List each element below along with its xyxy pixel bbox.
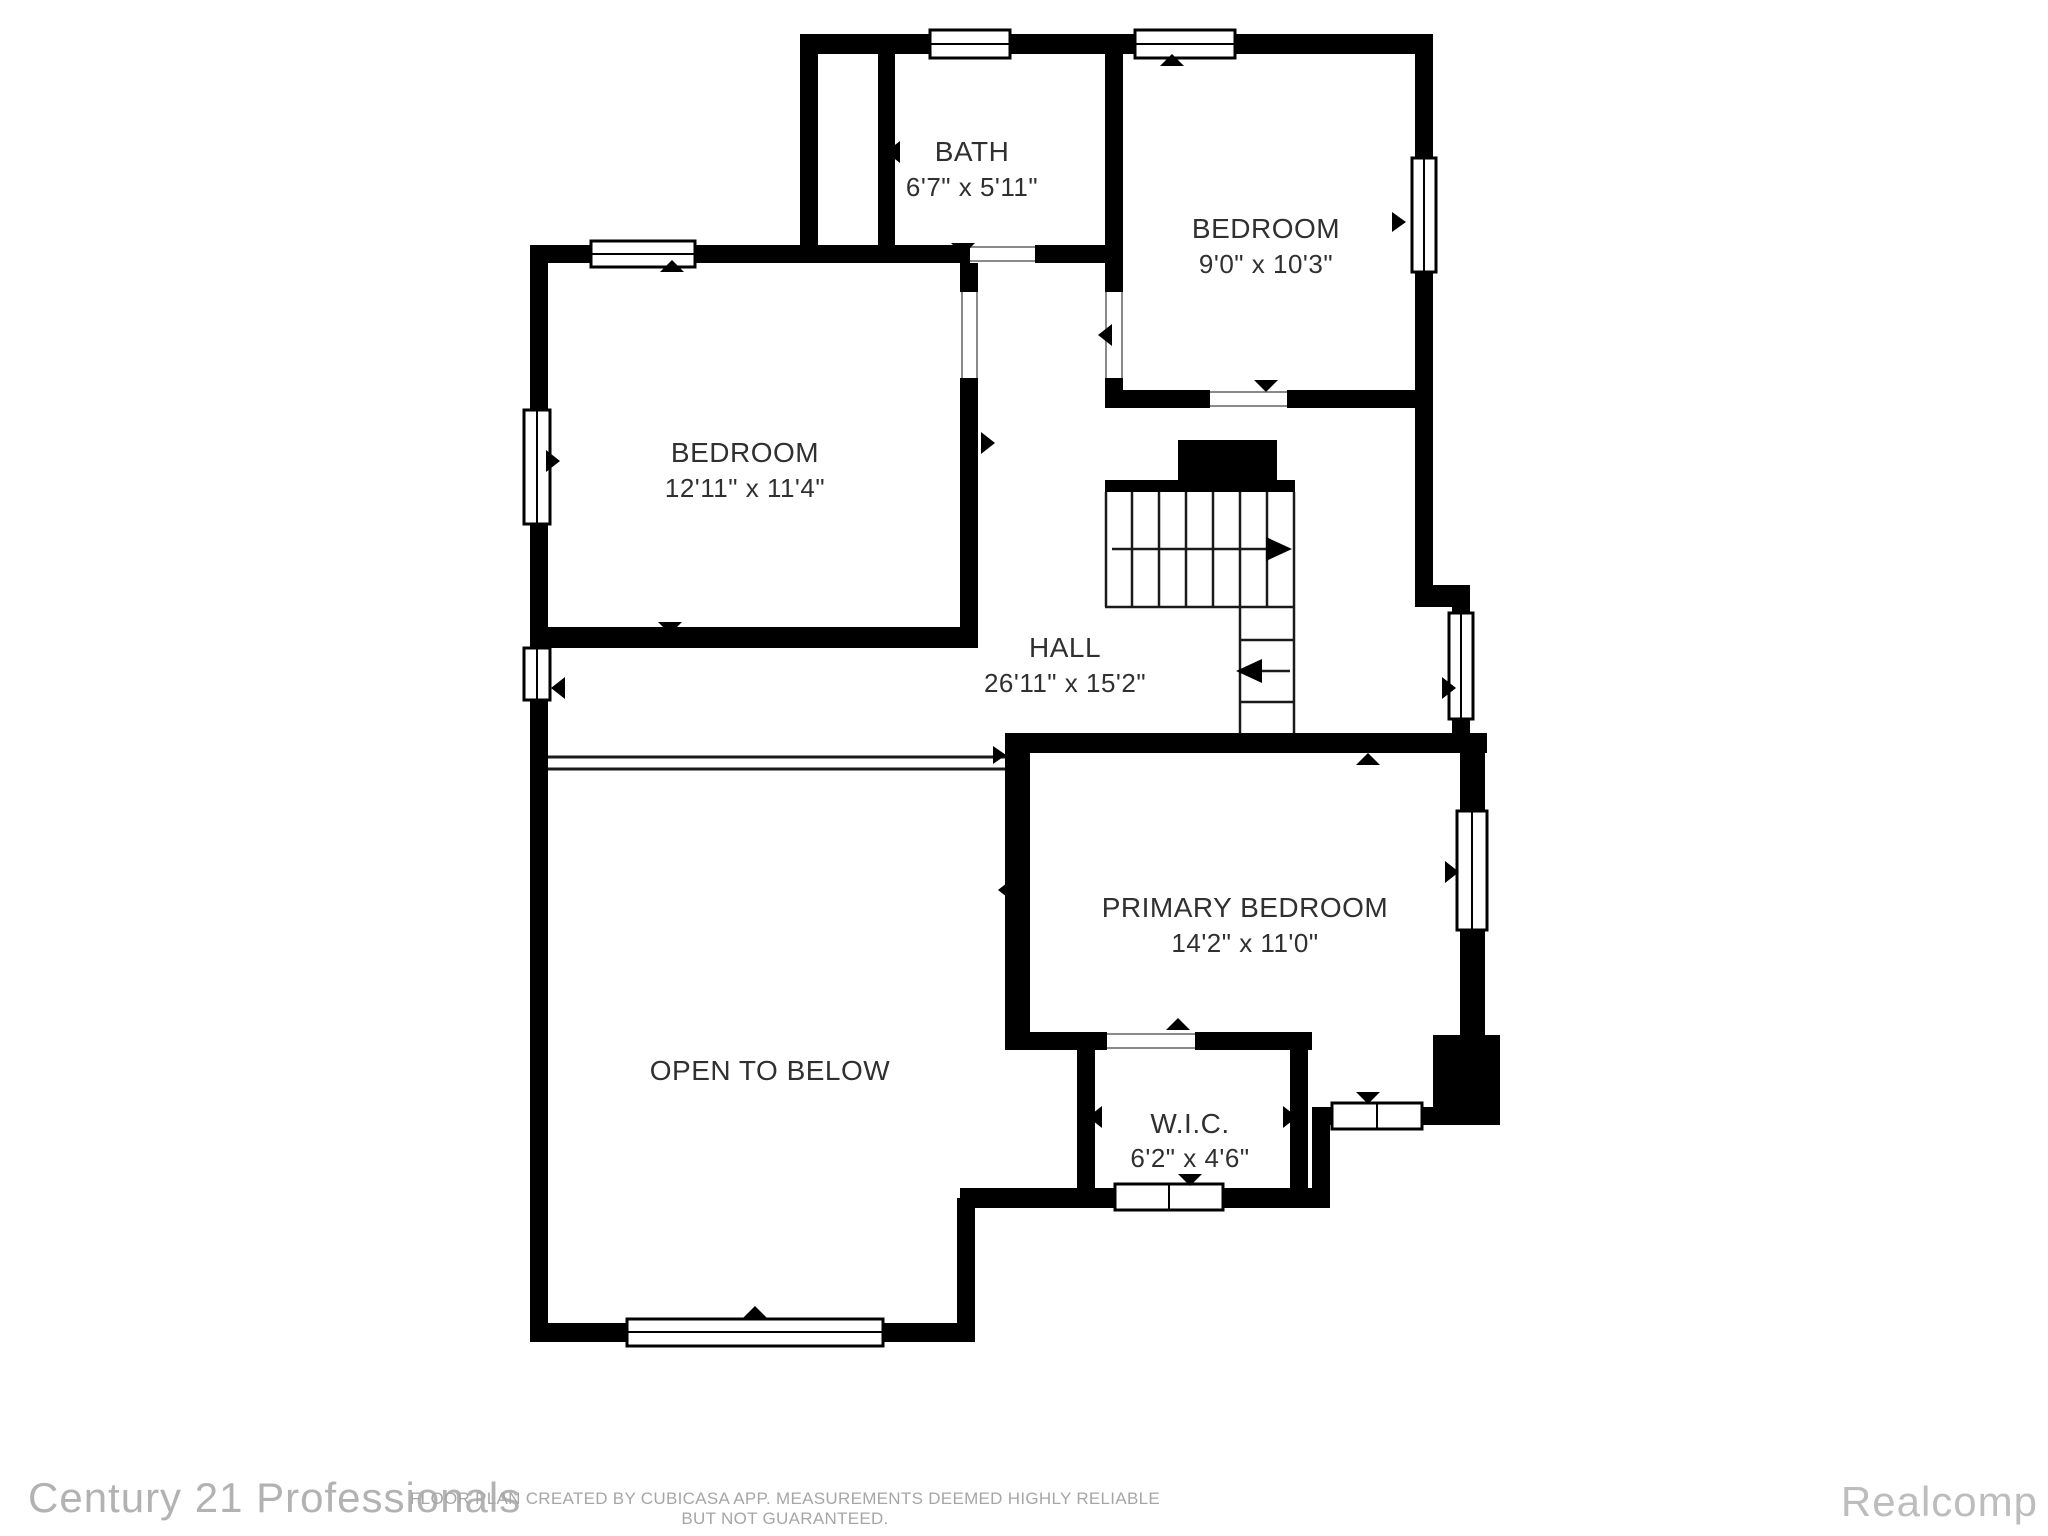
svg-text:HALL: HALL	[1029, 632, 1101, 663]
svg-text:OPEN TO BELOW: OPEN TO BELOW	[650, 1055, 890, 1086]
svg-text:6'2" x 4'6": 6'2" x 4'6"	[1130, 1143, 1249, 1173]
floor-plan-drawing: BATH 6'7" x 5'11" BEDROOM 9'0" x 10'3" B…	[0, 0, 2048, 1536]
stair-arrow-heads	[1236, 537, 1292, 683]
disclaimer-text: FLOOR PLAN CREATED BY CUBICASA APP. MEAS…	[400, 1489, 1170, 1529]
room-label-hall: HALL 26'11" x 15'2"	[984, 632, 1146, 698]
svg-text:PRIMARY BEDROOM: PRIMARY BEDROOM	[1102, 892, 1389, 923]
svg-text:BEDROOM: BEDROOM	[671, 437, 819, 468]
brand-realcomp: Realcomp	[1841, 1478, 2038, 1526]
floor-plan-page: BATH 6'7" x 5'11" BEDROOM 9'0" x 10'3" B…	[0, 0, 2048, 1536]
room-label-bedroom-left: BEDROOM 12'11" x 11'4"	[665, 437, 825, 503]
svg-text:6'7" x 5'11": 6'7" x 5'11"	[906, 172, 1038, 202]
room-label-primary-bedroom: PRIMARY BEDROOM 14'2" x 11'0"	[1102, 892, 1389, 958]
room-label-bedroom-top: BEDROOM 9'0" x 10'3"	[1192, 213, 1340, 279]
svg-text:9'0" x 10'3": 9'0" x 10'3"	[1199, 249, 1333, 279]
svg-text:W.I.C.: W.I.C.	[1150, 1108, 1229, 1139]
room-label-open-to-below: OPEN TO BELOW	[650, 1055, 890, 1086]
svg-text:BEDROOM: BEDROOM	[1192, 213, 1340, 244]
svg-text:12'11" x 11'4": 12'11" x 11'4"	[665, 473, 825, 503]
room-label-wic: W.I.C. 6'2" x 4'6"	[1130, 1108, 1249, 1173]
svg-text:BATH: BATH	[935, 136, 1010, 167]
svg-text:26'11" x 15'2": 26'11" x 15'2"	[984, 668, 1146, 698]
room-label-bath: BATH 6'7" x 5'11"	[906, 136, 1038, 202]
railing	[548, 757, 1005, 769]
svg-text:14'2" x 11'0": 14'2" x 11'0"	[1171, 928, 1318, 958]
